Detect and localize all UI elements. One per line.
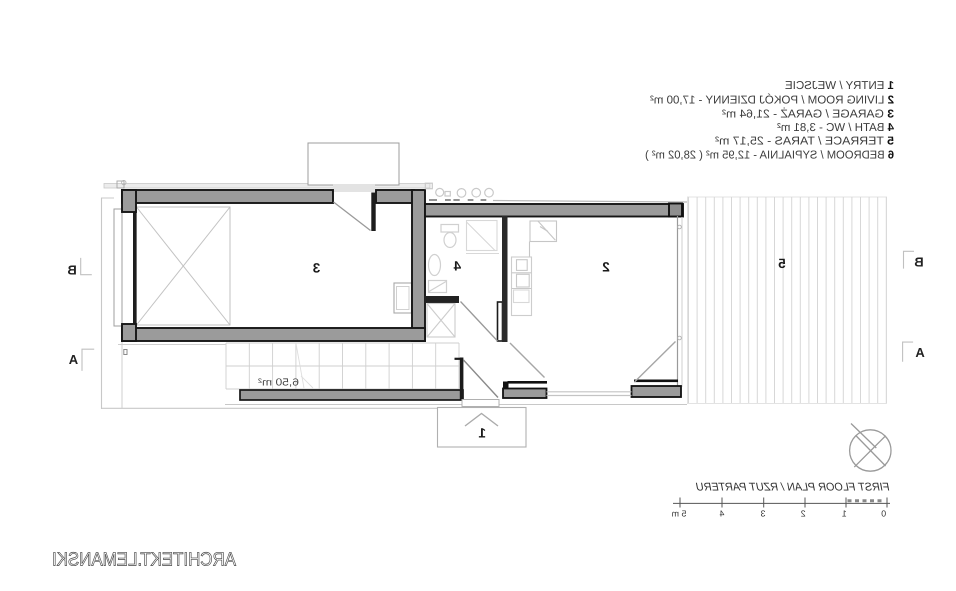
svg-text:4 BATH / WC - 3,81 m²: 4 BATH / WC - 3,81 m²: [777, 122, 894, 134]
svg-text:A: A: [915, 345, 925, 360]
svg-text:B: B: [67, 263, 76, 278]
svg-text:4: 4: [719, 509, 724, 519]
svg-text:0: 0: [881, 509, 886, 519]
svg-text:3: 3: [760, 509, 765, 519]
svg-text:ARCHITEKT.LEMANSKI: ARCHITEKT.LEMANSKI: [52, 550, 236, 571]
svg-text:5: 5: [778, 256, 786, 271]
svg-text:2 LIVING ROOM / POKÓJ DZIENNY: 2 LIVING ROOM / POKÓJ DZIENNY - 17,00 m²: [650, 94, 894, 107]
svg-text:3: 3: [312, 261, 320, 276]
svg-text:5 TERRACE / TARAS - 25,17 m²: 5 TERRACE / TARAS - 25,17 m²: [715, 136, 894, 148]
svg-text:FIRST FLOOR PLAN / RZUT PARTER: FIRST FLOOR PLAN / RZUT PARTERU: [695, 482, 889, 494]
svg-text:4: 4: [453, 259, 461, 274]
svg-text:1: 1: [478, 426, 486, 441]
svg-text:3 GARAGE / GARAŻ - 21,64 m²: 3 GARAGE / GARAŻ - 21,64 m²: [722, 108, 894, 121]
svg-text:6,50 m²: 6,50 m²: [257, 378, 299, 389]
svg-text:2: 2: [801, 509, 806, 519]
svg-text:B: B: [914, 255, 923, 270]
svg-text:1 ENTRY / WEJSCIE: 1 ENTRY / WEJSCIE: [785, 80, 894, 92]
svg-text:A: A: [68, 352, 78, 367]
svg-text:5 m: 5 m: [672, 509, 687, 519]
svg-text:2: 2: [602, 260, 610, 275]
svg-text:1: 1: [842, 509, 847, 519]
svg-text:6 BEDROOM / SYPIALNIA - 12,95: 6 BEDROOM / SYPIALNIA - 12,95 m² ( 28,02…: [645, 150, 894, 162]
